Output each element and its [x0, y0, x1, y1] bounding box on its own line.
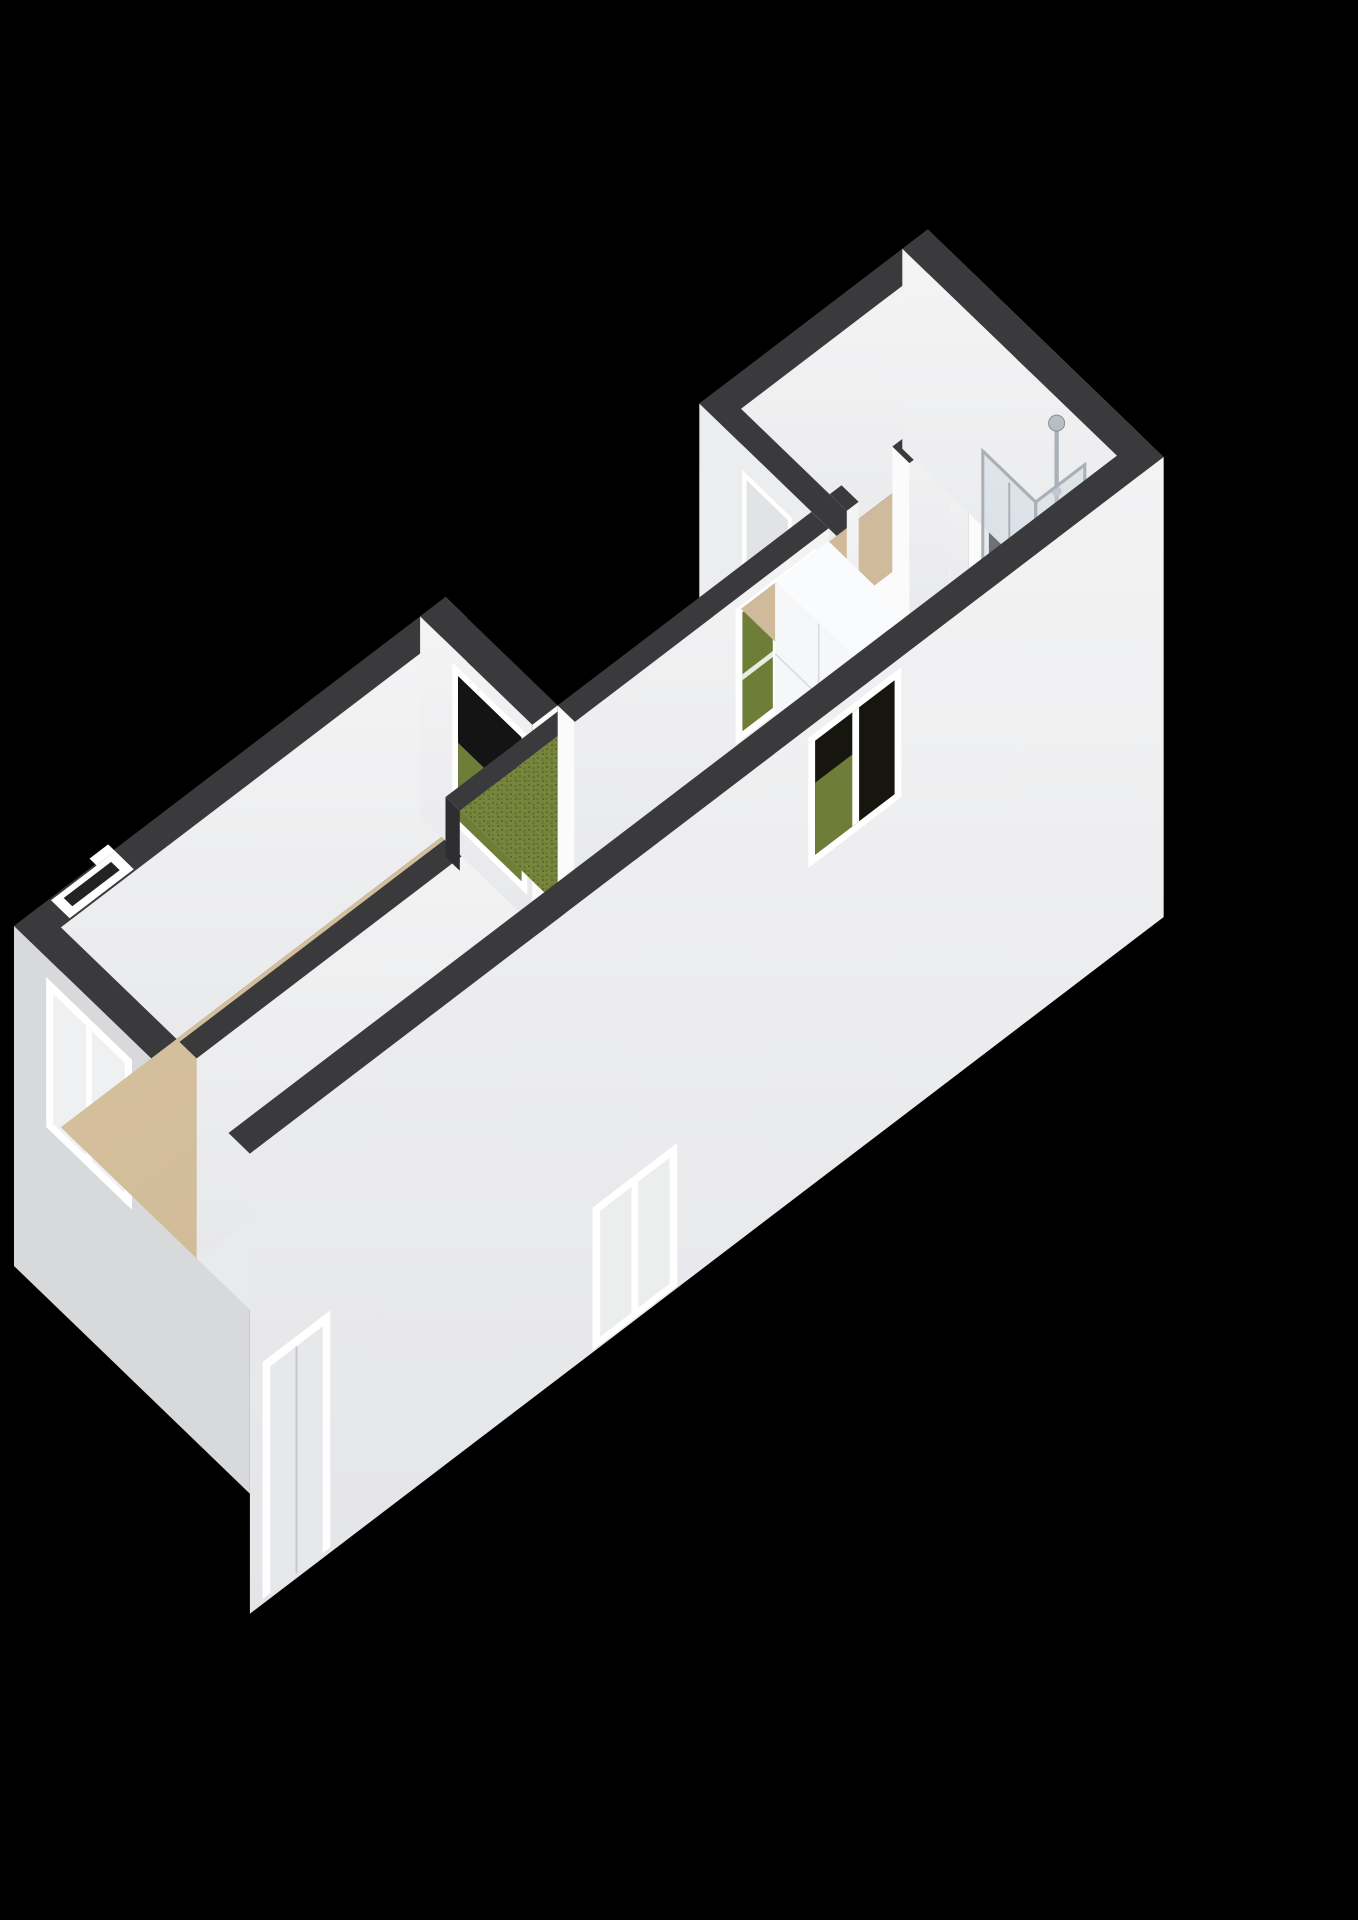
lower-level-window-mullion [632, 1182, 639, 1313]
shower-head [1049, 415, 1065, 431]
kitchen-window-outer-mullion [852, 707, 859, 826]
floorplan-3d-render [0, 0, 1358, 1920]
floorplan-svg [0, 0, 1358, 1920]
